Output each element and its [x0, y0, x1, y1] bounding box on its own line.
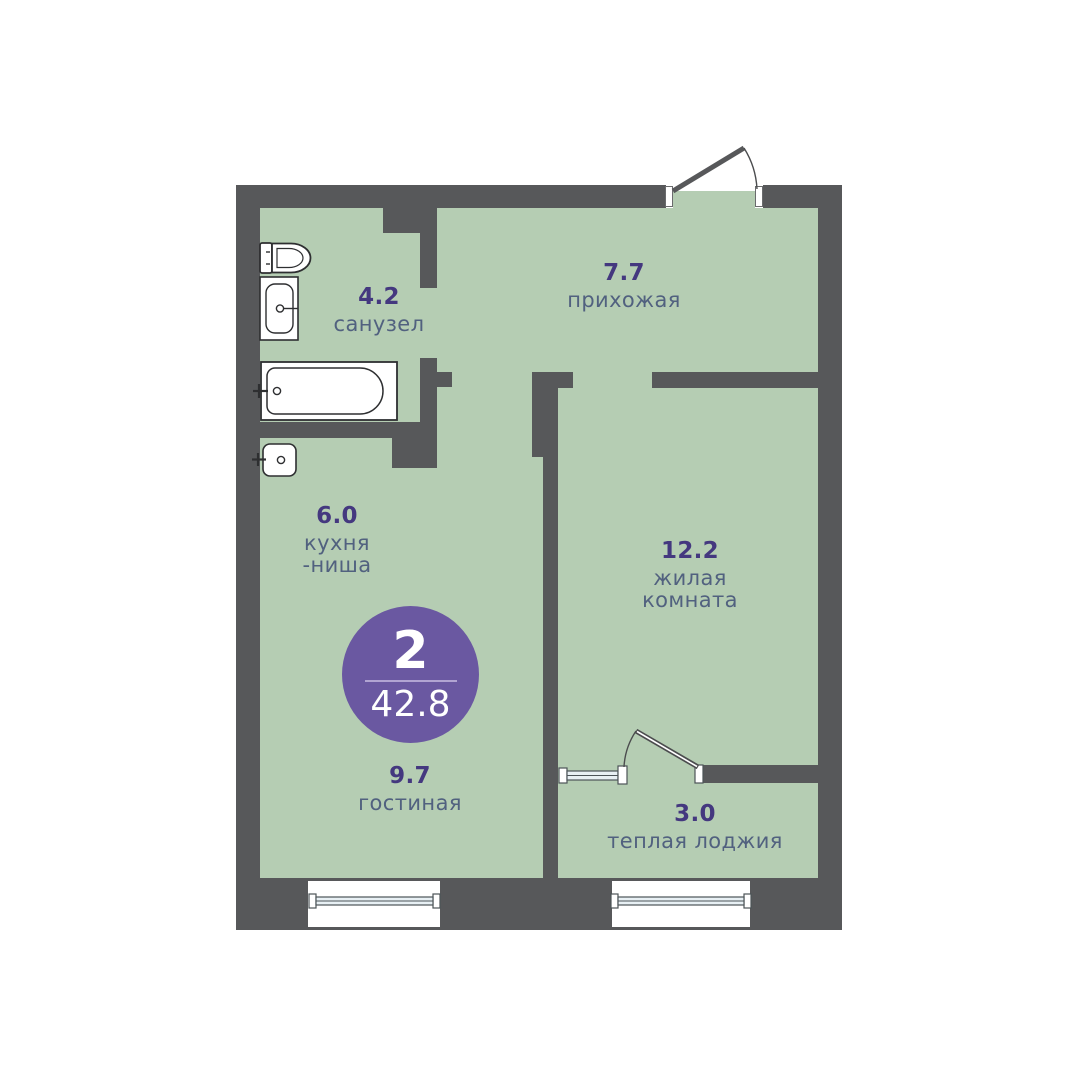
rooms-count: 2 [392, 626, 428, 676]
badge-divider [365, 680, 457, 682]
room-name: гостиная [358, 792, 462, 814]
room-label-living: 9.7 гостиная [358, 763, 462, 814]
window-opening-left [308, 881, 440, 927]
wall-hall-stub [437, 372, 452, 387]
entrance-floor-strip [673, 191, 755, 208]
wall-top-left [236, 185, 666, 208]
room-area-value: 6.0 [302, 503, 371, 529]
room-name-line2: комната [642, 589, 738, 611]
room-label-kitchen: 6.0 кухня -ниша [302, 503, 371, 576]
room-area-value: 7.7 [567, 260, 681, 286]
wall-central-lower [543, 457, 558, 878]
room-label-bathroom: 4.2 санузел [334, 284, 425, 335]
wall-bathroom-corner-block [392, 438, 437, 468]
wall-central-header [532, 372, 573, 388]
room-area-value: 12.2 [642, 538, 738, 564]
room-area-value: 9.7 [358, 763, 462, 789]
wall-bathroom-right-upper [420, 208, 437, 288]
wall-hall-bedroom [652, 372, 818, 388]
apartment-summary-badge: 2 42.8 [342, 606, 479, 743]
floorplan-canvas: 4.2 санузел 7.7 прихожая 6.0 кухня -ниша… [0, 0, 1080, 1080]
window-opening-right [612, 881, 750, 927]
room-name: теплая лоджия [607, 830, 783, 852]
wall-central-upper [532, 388, 558, 457]
wall-bedroom-loggia [695, 765, 818, 783]
room-label-hallway: 7.7 прихожая [567, 260, 681, 311]
room-label-bedroom: 12.2 жилая комната [642, 538, 738, 611]
entrance-door-icon [673, 148, 757, 191]
room-name-line2: -ниша [302, 554, 371, 576]
room-label-loggia: 3.0 теплая лоджия [607, 801, 783, 852]
wall-left [236, 185, 260, 930]
wall-right [818, 185, 842, 930]
room-name: прихожая [567, 289, 681, 311]
wall-bathroom-bottom [260, 422, 437, 438]
room-area-value: 3.0 [607, 801, 783, 827]
room-area-value: 4.2 [334, 284, 425, 310]
wall-bathroom-right-lower [420, 358, 437, 430]
room-name: санузел [334, 313, 425, 335]
room-name: жилая [642, 567, 738, 589]
room-name: кухня [302, 532, 371, 554]
entrance-door-jamb-left [665, 186, 673, 207]
entrance-door-jamb-right [755, 186, 763, 207]
total-area: 42.8 [370, 685, 450, 725]
